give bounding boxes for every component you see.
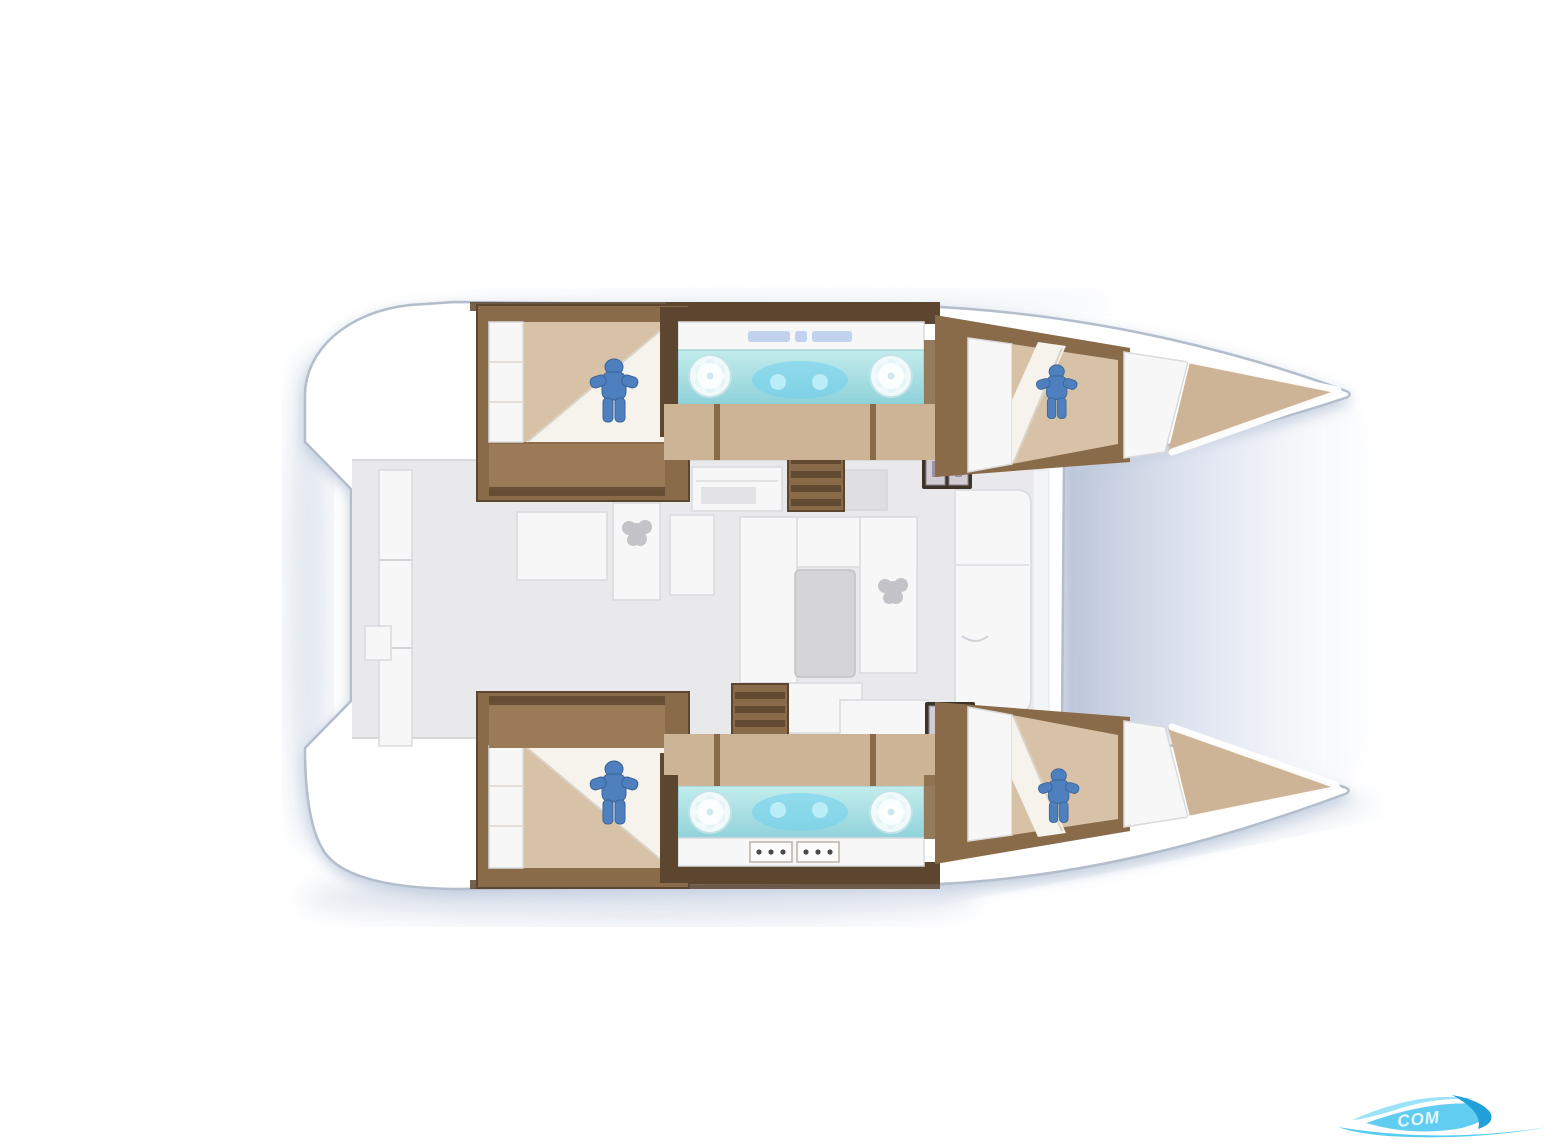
saloon-cabinet	[670, 515, 714, 595]
upper-aft-cabin	[477, 305, 689, 501]
stove-icon	[750, 842, 792, 862]
oven-icon	[797, 842, 839, 862]
catamaran-floor-plan: COM	[0, 0, 1560, 1144]
cockpit-step	[365, 626, 391, 660]
upper-hull-wall-thick	[666, 302, 940, 324]
counter-label-smudge	[748, 331, 852, 342]
pillows	[489, 746, 523, 868]
shower-glow	[752, 793, 848, 831]
pillows	[489, 322, 523, 442]
cabin-floor	[489, 444, 665, 490]
dinette-table	[795, 570, 855, 677]
pillows	[968, 707, 1012, 841]
floor-plan-canvas: COM	[0, 0, 1560, 1144]
sink-icon	[689, 791, 731, 833]
plant-box	[613, 503, 660, 600]
shower-glow	[752, 361, 848, 399]
lower-aft-cabin	[477, 692, 689, 888]
saloon-sofa	[517, 512, 607, 580]
sink-icon	[689, 355, 731, 397]
upper-head	[678, 322, 924, 404]
galley-block	[692, 467, 782, 511]
pillows	[968, 338, 1012, 472]
lower-head	[678, 786, 924, 866]
sink-icon	[870, 355, 912, 397]
forward-console	[955, 470, 1049, 722]
cabin-floor	[489, 702, 665, 748]
watermark-swoosh-logo: COM	[1338, 1095, 1548, 1137]
sink-icon	[870, 791, 912, 833]
saloon-seat	[840, 700, 928, 738]
